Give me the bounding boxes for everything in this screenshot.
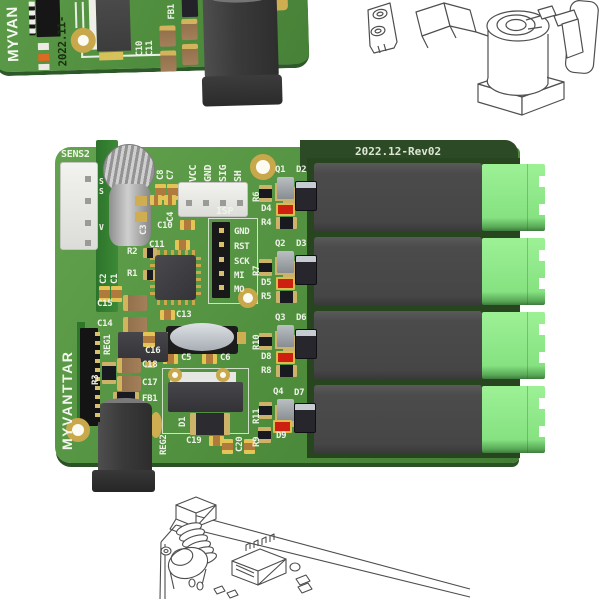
sens2-pin: [85, 198, 91, 204]
relay-3: [314, 311, 482, 380]
label-c8: C8: [157, 170, 166, 180]
fragment-label-fb1: FB1: [168, 4, 177, 20]
label-c16: C16: [145, 347, 160, 356]
ch4-resistor-label: R9: [253, 437, 262, 447]
pcb-main-render: 2022.12-Rev02 SENS2 S S V C8 C7 VCC GND …: [55, 140, 555, 500]
isp-pin: [219, 228, 224, 233]
cap-c1: [111, 286, 122, 302]
label-c18: C18: [142, 361, 157, 370]
cap-c4: [164, 195, 176, 205]
fragment-cap-2: [160, 50, 177, 71]
ch4-diode: [294, 403, 316, 433]
cap-c13: [160, 310, 175, 320]
sens2-pin-label-1: S: [99, 177, 104, 186]
relay-4: [314, 385, 482, 454]
fragment-brand-text: MYVAN: [4, 6, 23, 62]
label-c1: C1: [111, 274, 120, 284]
ch3-led-label: D8: [261, 353, 271, 362]
fragment-silk-line: [75, 2, 78, 28]
sens2-pin: [85, 240, 91, 246]
sens2-pin: [85, 176, 91, 182]
label-c15: C15: [97, 300, 112, 309]
isp-label-mi: MI: [234, 272, 244, 281]
sens2-label: SENS2: [61, 150, 90, 159]
terminal-block-1: [482, 164, 545, 231]
fragment-cap-3: [181, 19, 198, 40]
ch3-resistor-label: R8: [261, 367, 271, 376]
fragment-chip-white2: [38, 64, 49, 70]
fragment-relay-edge: [96, 0, 131, 52]
wireframe-board-drawing: [132, 485, 472, 600]
fragment-chip-white: [38, 43, 49, 50]
cap-c14: [123, 317, 147, 333]
isp-pin: [219, 271, 224, 276]
fragment-barrel-jack: [202, 0, 279, 83]
cap-c20a: [222, 439, 233, 454]
ch2-diode: [295, 255, 317, 285]
terminal-block-2: [482, 238, 545, 305]
label-c2: C2: [100, 274, 109, 284]
wf2-board-hole: [290, 563, 300, 571]
plated-hole-1: [168, 368, 182, 382]
sens2-pin-label-4: V: [99, 223, 104, 232]
ch4-transistor-label: Q4: [273, 388, 283, 397]
sensor-pad-1: [135, 196, 147, 206]
ch2-transistor: [277, 251, 294, 273]
label-c10: C10: [157, 222, 172, 231]
fragment-cap-4: [182, 44, 199, 65]
fragment-chip-orange: [38, 54, 49, 61]
diode-d1: [190, 413, 230, 435]
label-c6: C6: [220, 354, 230, 363]
ch3-diode: [295, 329, 317, 359]
ch1-diode-label: D2: [296, 166, 306, 175]
label-d1: D1: [179, 417, 188, 427]
label-c20: C20: [236, 437, 245, 452]
label-vcc: VCC: [189, 165, 198, 182]
barrel-jack-base: [92, 470, 155, 492]
terminal-block-3: [482, 312, 545, 379]
plated-hole-2: [216, 368, 230, 382]
cap-c11: [175, 240, 190, 250]
label-c11: C11: [149, 241, 164, 250]
ch4-transistor: [277, 399, 294, 421]
label-c3: C3: [140, 225, 149, 235]
ch2-led-label: D5: [261, 279, 271, 288]
ch3-led: [276, 351, 295, 364]
fragment-cap-1: [159, 25, 176, 46]
mcu-chip: [155, 255, 196, 300]
ch1-series-resistor-label: R6: [253, 192, 262, 202]
ch4-series-resistor-label: R11: [253, 409, 262, 424]
ch1-led-label: D4: [261, 205, 271, 214]
sensor-pad-2: [135, 212, 147, 222]
ch1-resistor: [276, 217, 297, 229]
sens2-pin: [85, 220, 91, 226]
ch3-resistor: [276, 365, 297, 377]
label-reg1: REG1: [104, 335, 113, 355]
ch1-led: [276, 203, 295, 216]
isp-label-mo: MO: [234, 286, 244, 295]
label-c14: C14: [97, 320, 112, 329]
fragment-label-c11: C11: [146, 41, 155, 57]
wf-top-tab: [538, 6, 556, 19]
ch1-resistor-label: R4: [261, 219, 271, 228]
cap-c3: [150, 195, 162, 205]
isp-pin: [219, 285, 224, 290]
ch2-resistor-label: R5: [261, 293, 271, 302]
fragment-connector-pads: [29, 1, 36, 35]
ch2-resistor: [276, 291, 297, 303]
sens2-pin-label-2: S: [99, 187, 104, 196]
wf2-screw-hole: [161, 547, 171, 555]
cap-c10: [180, 220, 195, 230]
ch3-series-resistor-label: R10: [253, 335, 262, 350]
label-isp: ISP: [216, 207, 233, 216]
ch3-transistor-label: Q3: [275, 314, 285, 323]
isp-pin: [219, 242, 224, 247]
relay-2: [314, 237, 482, 306]
ch2-diode-label: D3: [296, 240, 306, 249]
signal-pin: [203, 200, 209, 206]
fragment-gold-pad-strip: [99, 52, 123, 61]
ch2-transistor-label: Q2: [275, 240, 285, 249]
wireframe-connector-drawing: [350, 0, 600, 130]
label-c5: C5: [181, 354, 191, 363]
signal-pin: [237, 200, 243, 206]
ch4-diode-label: D7: [294, 389, 304, 398]
isp-pin: [219, 257, 224, 262]
label-c13: C13: [176, 311, 191, 320]
cap-c16: [143, 332, 155, 347]
ch3-transistor: [277, 325, 294, 347]
ch1-transistor: [277, 177, 294, 199]
label-fb1: FB1: [142, 395, 157, 404]
ch2-series-resistor-label: R7: [253, 266, 262, 276]
label-r1: R1: [127, 270, 137, 279]
label-c7: C7: [167, 170, 176, 180]
fragment-silk-line2: [82, 2, 85, 28]
ch2-led: [276, 277, 295, 290]
mounting-hole-top: [250, 154, 276, 180]
isp-label-rst: RST: [234, 243, 249, 252]
ch1-diode: [295, 181, 317, 211]
label-r3: R3: [92, 375, 101, 385]
terminal-block-4: [482, 386, 545, 453]
fragment-date-text: 2022.11-: [56, 16, 68, 67]
label-c19: C19: [186, 437, 201, 446]
fragment-label-c10: C10: [136, 41, 145, 57]
label-sig: SIG: [219, 165, 228, 182]
cap-c15: [123, 295, 147, 311]
fragment-ferrite-chip: [182, 0, 199, 17]
label-c17: C17: [142, 379, 157, 388]
fragment-board-substrate: MYVAN 2022.11- C10 C11 FB1: [0, 0, 310, 76]
crystal-pad-right: [237, 332, 246, 344]
relay-1: [314, 163, 482, 232]
label-sh: SH: [234, 171, 243, 182]
cap-c18: [117, 358, 141, 373]
signal-pin: [186, 200, 192, 206]
isp-label-gnd: GND: [234, 228, 249, 237]
ch4-led-label: D9: [276, 432, 286, 441]
label-r2: R2: [127, 248, 137, 257]
wf-mid-box-side: [444, 3, 476, 32]
page-background: { "fragment_board": { "brand_partial": "…: [0, 0, 600, 600]
reg2-body: [168, 382, 243, 412]
res-r3: [102, 362, 116, 384]
ch1-transistor-label: Q1: [275, 166, 285, 175]
cap-c6: [202, 354, 217, 364]
label-reg2: REG2: [160, 435, 169, 455]
revision-text: 2022.12-Rev02: [355, 146, 441, 158]
label-gnd: GND: [204, 165, 213, 182]
fragment-barrel-jack-base: [202, 74, 283, 106]
crystal-can: [170, 323, 234, 351]
ch3-diode-label: D6: [296, 314, 306, 323]
sens2-connector: [60, 162, 98, 250]
cap-c17: [117, 376, 141, 391]
brand-text: MYVANTTAR: [59, 351, 75, 450]
isp-label-sck: SCK: [234, 258, 249, 267]
